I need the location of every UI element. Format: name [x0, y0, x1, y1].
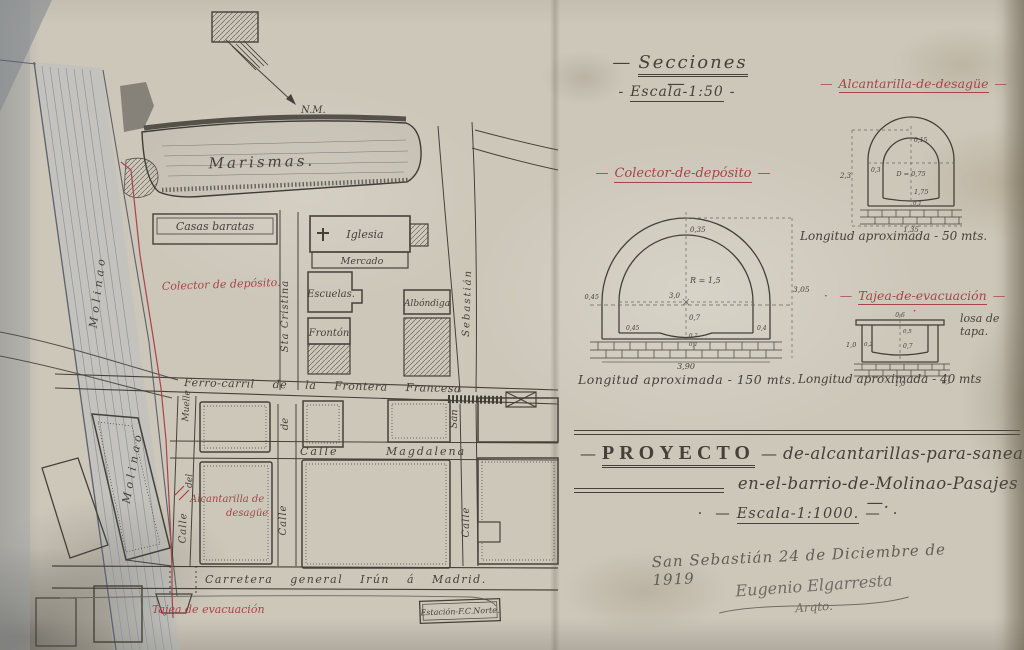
sections-scale-text: Escala-1:50	[630, 84, 724, 102]
dim-base: 0,1	[689, 342, 698, 348]
dash: —	[589, 166, 614, 181]
colector-title-text: Colector-de-depósito	[614, 166, 751, 183]
street-label-del: del	[185, 474, 195, 488]
dim-side: 1,0	[846, 341, 856, 349]
title-scale: ·—Escala-1:1000.—·	[574, 506, 1022, 522]
street-label-de: de	[280, 418, 291, 430]
dash: —	[834, 288, 859, 303]
escuelas-block: Escuelas.	[306, 272, 362, 312]
plan-sheet: Molinao Molinao N.M.	[0, 0, 1024, 650]
alcantarilla-map-label-2: desagüe	[226, 508, 268, 519]
dash: —	[755, 444, 783, 463]
marismas-label: Marismas.	[207, 152, 315, 173]
iglesia-label: Iglesia	[345, 228, 383, 241]
albondiga-label: Albóndiga	[403, 298, 450, 309]
dim-apex: 0,35	[690, 226, 706, 234]
dim-wall: 0,3	[871, 167, 881, 174]
fronton-block: Frontón	[308, 318, 350, 374]
tajea-map-label: Tajea de evacuación	[152, 603, 265, 616]
albondiga-block: Albóndiga	[403, 290, 450, 376]
dim-invert: 0,2	[689, 333, 698, 339]
sluice-structure	[120, 82, 154, 132]
title-rule-top	[574, 430, 1020, 435]
north-arrow: N.M.	[226, 40, 326, 116]
dash: -	[724, 84, 742, 100]
title-scale-text: Escala-1:1000.	[737, 506, 860, 524]
mercado-label: Mercado	[340, 256, 384, 267]
escuelas-label: Escuelas.	[306, 289, 355, 300]
building-top	[212, 12, 258, 42]
losa-de-tapa-note: losa de tapa.	[960, 312, 1024, 338]
colector-cross-section: 0,35 R = 1,5 3,0 0,7 0,45 0,45 0,2 0,1 0…	[574, 190, 809, 370]
station-symbol	[506, 392, 536, 407]
dim-inner: 0,5	[903, 329, 912, 335]
dash: —	[987, 288, 1012, 303]
estacion-box: Estación-F.C.Norte.	[419, 599, 500, 624]
dim-total-height: 2,3	[839, 172, 852, 180]
dim-wall-right: 0,4	[757, 325, 767, 332]
alcantarilla-cross-section: 0,15 0,3 D = 0,75 1,75 2,3 0,1 1,35	[838, 98, 1013, 233]
dim-bench-left: 0,45	[626, 325, 640, 332]
dash: —	[574, 444, 602, 463]
platform-hatch	[448, 399, 504, 400]
street-label-calle-c: Calle	[278, 505, 289, 536]
dim-top: 0,15	[914, 137, 928, 144]
carretera-label: Carretera general Irún á Madrid.	[205, 573, 487, 586]
street-label-calle-e: Calle	[461, 507, 472, 538]
foundation-masonry	[860, 210, 962, 224]
dash: -	[612, 84, 630, 100]
dim-height: 3,05	[793, 285, 809, 294]
casas-baratas-block: Casas baratas	[153, 214, 277, 244]
tajea-length-note: Longitud aproximada - 40 mts	[798, 372, 1024, 386]
dash: —	[989, 76, 1014, 91]
dash: —	[709, 506, 737, 522]
dim-radius: R = 1,5	[689, 276, 721, 285]
alcantarilla-title-text: Alcantarilla-de-desagüe	[839, 76, 989, 93]
street-label-muelle: Muelle	[181, 390, 193, 423]
estacion-label: Estación-F.C.Norte.	[419, 606, 499, 618]
dot: ·	[692, 506, 710, 522]
church-cross-icon	[317, 228, 329, 241]
dot: ·	[887, 506, 905, 522]
tajea-title-text: Tajea-de-evacuación	[858, 288, 986, 305]
title-line-1: de-alcantarillas-para-saneamiento-	[783, 444, 1024, 463]
dash: —	[814, 76, 839, 91]
alcantarilla-section-title: —Alcantarilla-de-desagüe—	[806, 76, 1021, 91]
colector-length-note: Longitud aproximada - 150 mts.	[578, 372, 828, 387]
colector-map-label: Colector de depósito.	[162, 276, 281, 293]
tower	[410, 224, 428, 246]
dot: ·	[818, 288, 834, 303]
title-rule-left	[574, 488, 724, 493]
dim-top: 0,6	[895, 312, 905, 319]
town-plan-map: Molinao Molinao N.M.	[0, 0, 560, 650]
street-label-sebastian: Sebastián	[461, 269, 474, 337]
dash: —	[752, 166, 777, 181]
dim-drop: 0,7	[689, 314, 701, 322]
dash: —	[606, 52, 638, 73]
street-label-sta-cristina: Sta Cristina	[280, 280, 291, 352]
iglesia-block: Iglesia Mercado	[310, 216, 428, 268]
city-blocks	[200, 398, 558, 568]
proyecto-title: PROYECTO	[602, 442, 755, 468]
title-row-1: —PROYECTO—de-alcantarillas-para-saneamie…	[574, 442, 1022, 465]
sections-scale: -Escala-1:50-	[592, 84, 762, 100]
signature-flourish	[714, 596, 914, 616]
dim-wall: 0,2	[864, 342, 873, 348]
dim-base: 0,1	[913, 201, 922, 207]
alcantarilla-map-label-1: Alcantarilla de	[189, 494, 264, 505]
railway-label: Ferro-carril de la Frontera Francesa	[183, 376, 461, 395]
colector-section-title: —Colector-de-depósito—	[573, 166, 793, 181]
dim-depth: 0,7	[903, 343, 913, 350]
north-label: N.M.	[300, 105, 326, 116]
dash: —	[859, 506, 887, 522]
alcantarilla-length-note: Longitud aproximada - 50 mts.	[800, 229, 1024, 243]
fronton-label: Frontón	[308, 328, 350, 339]
casas-baratas-label: Casas baratas	[176, 220, 255, 233]
marismas-area: Marismas.	[142, 117, 421, 197]
dim-inner-height: 1,75	[914, 188, 928, 196]
title-block: —PROYECTO—de-alcantarillas-para-saneamie…	[574, 428, 1022, 643]
arrowhead-icon	[286, 94, 296, 105]
street-magdalena: Calle Magdalena	[170, 441, 558, 460]
foundation-masonry	[590, 342, 782, 358]
dim-wall-left: 0,45	[585, 293, 599, 301]
dim-span: 3,0	[669, 292, 681, 300]
dim-diameter: D = 0,75	[895, 170, 925, 178]
street-label-calle-w: Calle	[177, 512, 189, 543]
dim-width: 3,90	[677, 362, 695, 370]
